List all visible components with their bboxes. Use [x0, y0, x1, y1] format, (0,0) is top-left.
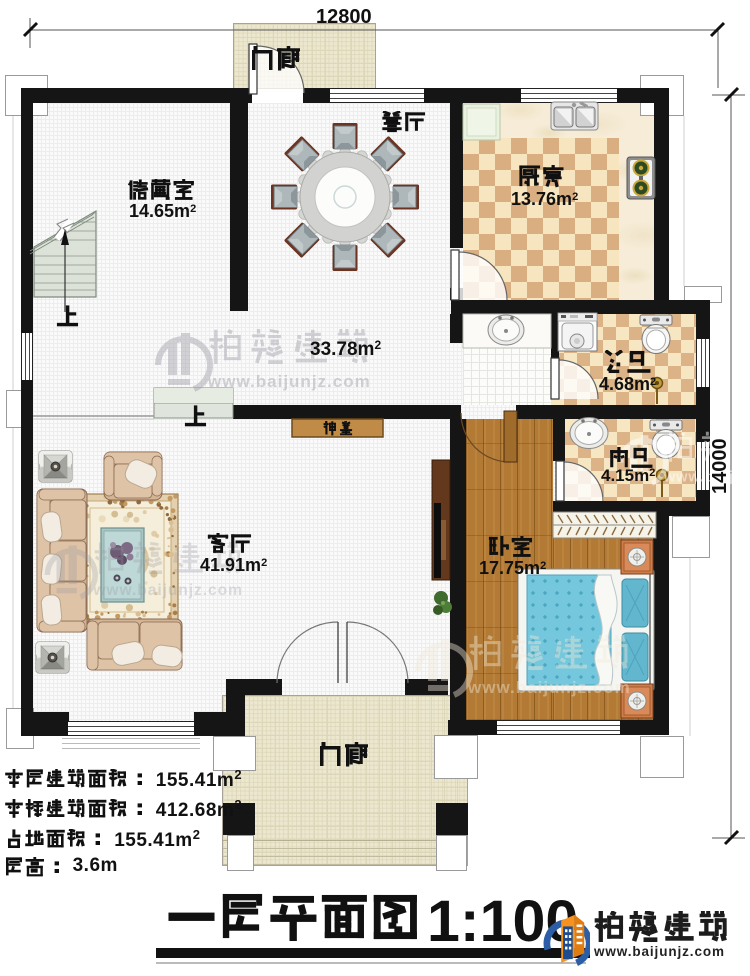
svg-text:www.baijunjz.com: www.baijunjz.com — [467, 678, 631, 697]
svg-text:www.baijunjz.com: www.baijunjz.com — [92, 582, 243, 599]
svg-text:www.baijunjz.com: www.baijunjz.com — [207, 372, 371, 391]
svg-text:www.baijunjz.com: www.baijunjz.com — [663, 470, 750, 486]
